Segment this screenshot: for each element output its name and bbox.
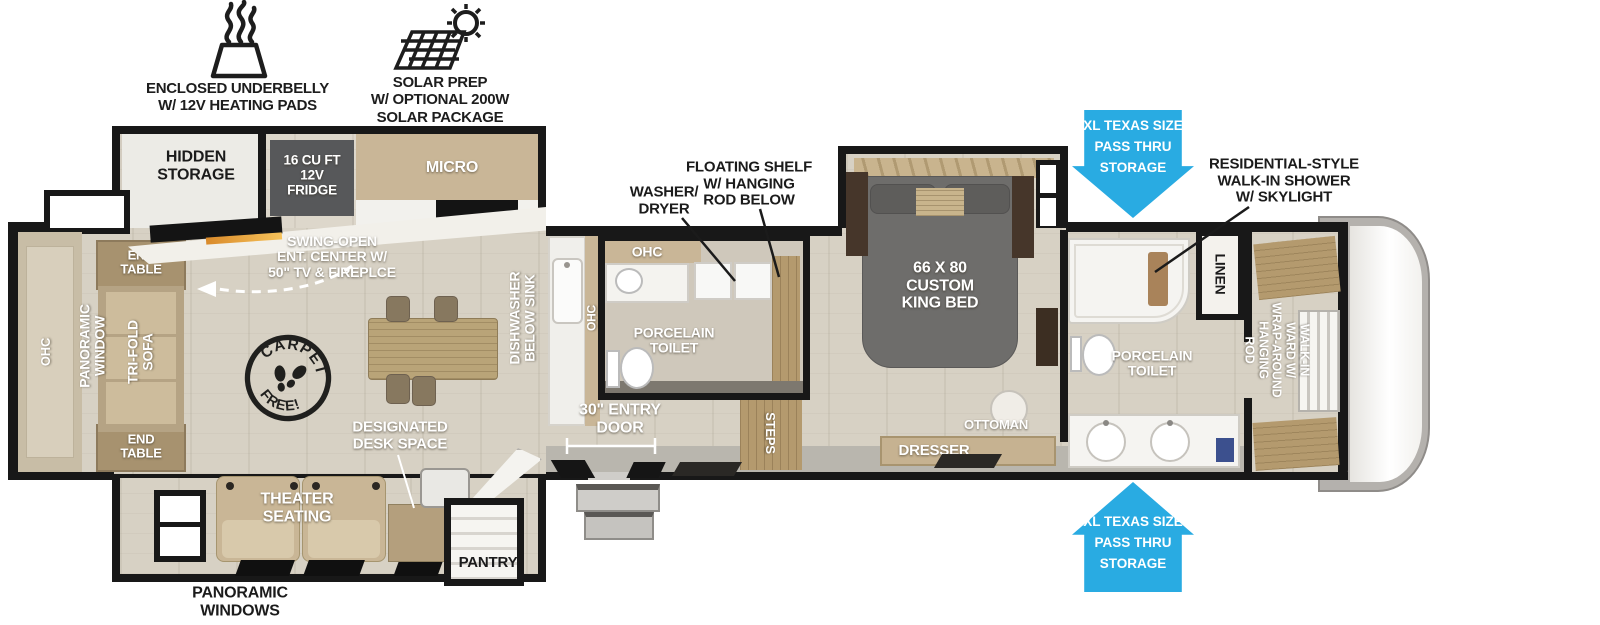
floating-shelf-callout: FLOATING SHELF W/ HANGING ROD BELOW: [686, 159, 812, 209]
cupholder: [290, 482, 298, 490]
king-bed-label: 66 X 80 CUSTOM KING BED: [902, 260, 979, 313]
toiletry-item: [1216, 438, 1234, 462]
feature-solar-prep-label: SOLAR PREP W/ OPTIONAL 200W SOLAR PACKAG…: [371, 74, 509, 126]
wall-bottom-right: [546, 472, 1348, 480]
rear-ohc-label: OHC: [39, 338, 53, 366]
entry-door-label: 30" ENTRY DOOR: [579, 401, 661, 436]
micro-label: MICRO: [426, 159, 478, 177]
desk-cabinet: [388, 504, 446, 562]
wardrobe-bench-top: [1253, 236, 1340, 300]
front-toilet-tank: [1070, 336, 1082, 372]
dining-chair: [434, 296, 458, 322]
tri-fold-sofa-label: TRI-FOLD SOFA: [126, 320, 157, 384]
walk-in-shower-callout: RESIDENTIAL-STYLE WALK-IN SHOWER W/ SKYL…: [1209, 156, 1359, 206]
designated-desk-label: DESIGNATED DESK SPACE: [352, 420, 447, 453]
slide-window-mark: [303, 560, 365, 576]
entry-mat: [672, 462, 742, 476]
wardrobe-bench-bottom: [1252, 417, 1339, 471]
theater-seating-label: THEATER SEATING: [261, 490, 334, 525]
nightstand: [846, 172, 868, 256]
dining-table: [368, 318, 498, 380]
bed-blanket-fold: [916, 188, 964, 216]
theater-seat-cushion: [308, 520, 380, 558]
ent-center-label: SWING-OPEN ENT. CENTER W/ 50" TV & FIREP…: [268, 234, 396, 280]
wall-bedroom-bath: [1060, 230, 1068, 442]
faucet: [564, 262, 570, 268]
ottoman-label: OTTOMAN: [964, 418, 1028, 432]
slide-window-mark: [235, 560, 295, 576]
mid-toilet-tank: [606, 350, 620, 388]
pantry-label: PANTRY: [459, 555, 518, 572]
panoramic-windows-label: PANORAMIC WINDOWS: [192, 584, 288, 619]
rear-corner-window: [44, 190, 130, 234]
headboard: [854, 158, 1054, 178]
heating-pads-icon: [192, 0, 284, 80]
exterior-step: [576, 484, 660, 512]
front-toilet-label: PORCELAIN TOILET: [1112, 349, 1193, 380]
floating-shelf: [772, 256, 800, 392]
cupholder: [312, 482, 320, 490]
pantry: [444, 498, 524, 586]
pass-thru-arrow-bottom-label: XL TEXAS SIZE PASS THRU STORAGE: [1072, 512, 1194, 575]
mid-bath-ohc-label: OHC: [632, 244, 663, 259]
vanity-faucet: [1103, 420, 1109, 426]
bedroom-tv-cabinet: [1036, 308, 1058, 366]
theater-seat-cushion: [222, 520, 294, 558]
walk-in-ward-label: WALK-IN WARD W/ WRAP-AROUND HANGING ROD: [1242, 302, 1311, 397]
dining-chair: [386, 374, 410, 404]
front-cap-highlight: [1350, 226, 1422, 482]
exterior-step: [584, 512, 654, 540]
dishwasher-label: DISHWASHER BELOW SINK: [508, 272, 539, 365]
panoramic-window-label: PANORAMIC WINDOW: [78, 304, 109, 388]
wall-bottom-left: [8, 472, 114, 480]
vanity-faucet: [1167, 420, 1173, 426]
wall-bath-ward-lower: [1244, 398, 1252, 474]
hidden-storage-label: HIDDEN STORAGE: [157, 148, 234, 183]
vanity-sink: [1150, 422, 1190, 462]
fridge-label: 16 CU FT 12V FRIDGE: [284, 154, 341, 199]
cupholder: [372, 482, 380, 490]
floorplan-canvas: ENCLOSED UNDERBELLY W/ 12V HEATING PADS …: [0, 0, 1600, 625]
linen-label: LINEN: [1212, 253, 1227, 294]
mid-bath-basin: [615, 268, 643, 294]
washer: [694, 262, 732, 300]
nightstand: [1012, 176, 1034, 258]
counter-ohc-label: OHC: [585, 305, 598, 331]
cupholder: [226, 482, 234, 490]
slide-window-mark: [393, 562, 442, 576]
dining-chair: [412, 376, 436, 406]
feature-solar-prep: SOLAR PREP W/ OPTIONAL 200W SOLAR PACKAG…: [350, 2, 530, 126]
theater-window-pane: [160, 496, 200, 522]
mid-toilet-label: PORCELAIN TOILET: [634, 326, 715, 357]
feature-enclosed-underbelly-label: ENCLOSED UNDERBELLY W/ 12V HEATING PADS: [146, 80, 329, 115]
steps-label: STEPS: [763, 412, 777, 454]
feature-enclosed-underbelly: ENCLOSED UNDERBELLY W/ 12V HEATING PADS: [140, 0, 335, 115]
bedroom-mat: [934, 454, 1002, 468]
theater-window-pane: [160, 527, 200, 556]
end-table-bottom-label: END TABLE: [120, 433, 161, 462]
wall-rear: [8, 222, 18, 480]
solar-panel-icon: [388, 2, 492, 74]
bedroom-window-pane: [1040, 198, 1056, 226]
pass-thru-arrow-top-label: XL TEXAS SIZE PASS THRU STORAGE: [1072, 116, 1194, 179]
bedroom-window-pane: [1040, 165, 1056, 193]
dining-chair: [386, 296, 410, 322]
shower-seat: [1148, 252, 1168, 306]
vanity-sink: [1086, 422, 1126, 462]
dryer: [734, 262, 772, 300]
